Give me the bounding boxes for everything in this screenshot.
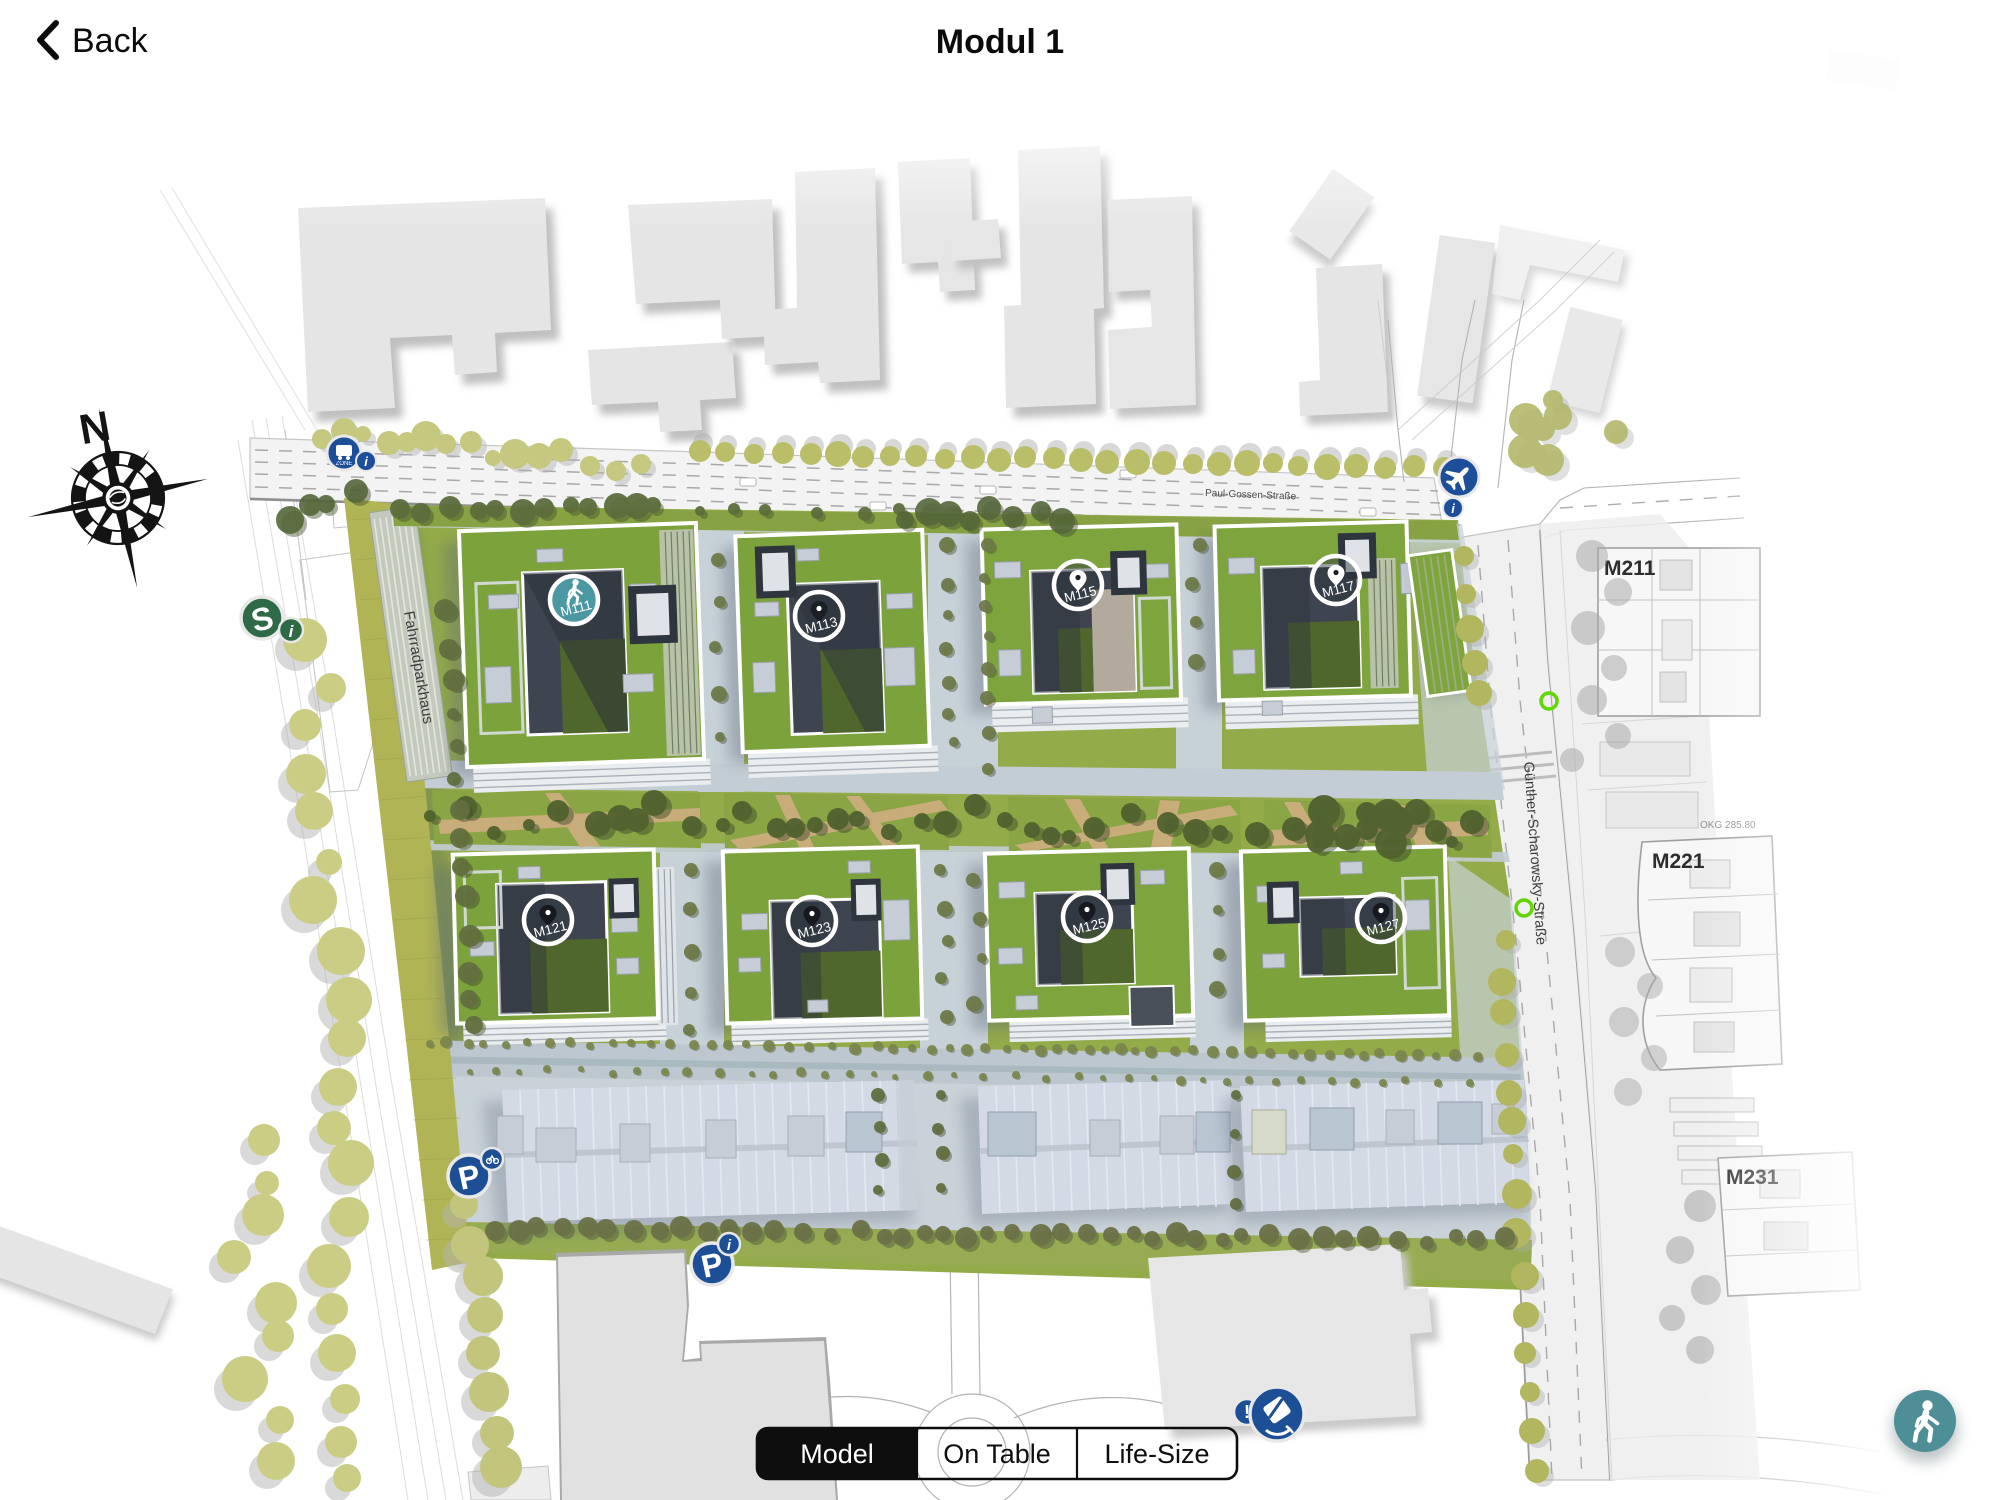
svg-text:Back: Back (72, 22, 149, 60)
svg-text:M221: M221 (1652, 850, 1705, 873)
svg-text:Life-Size: Life-Size (1104, 1439, 1209, 1469)
svg-text:i: i (1451, 501, 1455, 516)
svg-text:ZONE: ZONE (336, 461, 353, 467)
svg-text:Model: Model (800, 1439, 874, 1469)
svg-text:On Table: On Table (943, 1439, 1051, 1469)
svg-text:i: i (364, 454, 368, 469)
svg-text:Modul 1: Modul 1 (936, 23, 1064, 61)
svg-text:M211: M211 (1604, 557, 1656, 580)
